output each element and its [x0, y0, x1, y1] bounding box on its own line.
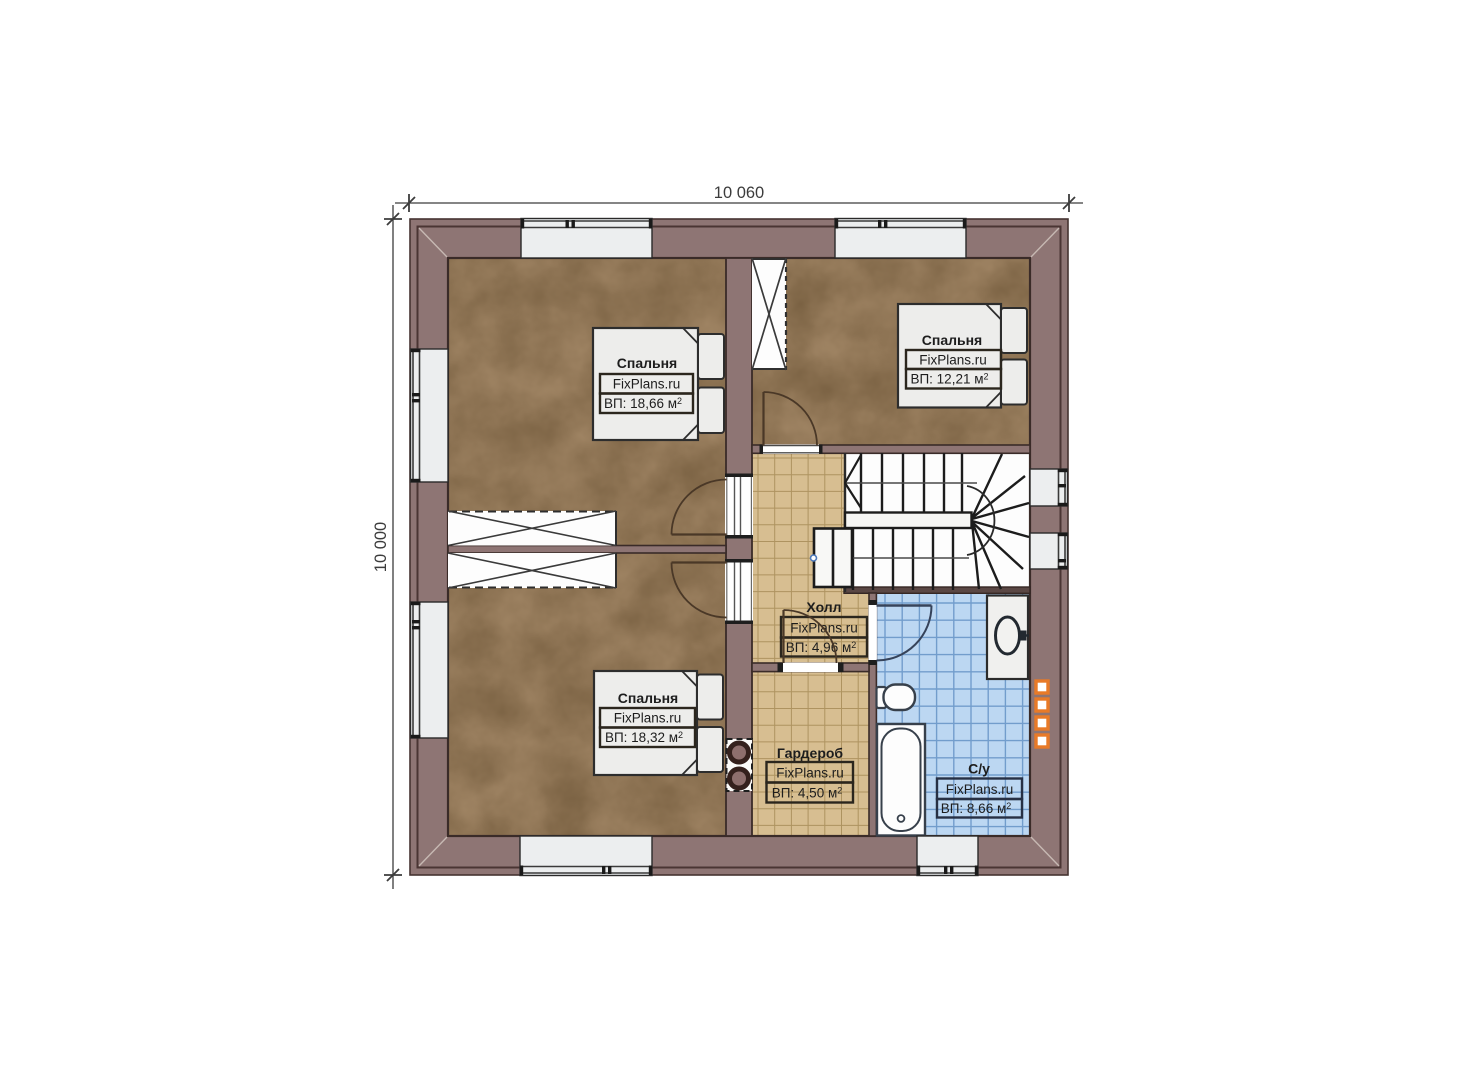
- svg-text:Спальня: Спальня: [922, 332, 982, 348]
- svg-text:ВП: 18,32 м2: ВП: 18,32 м2: [605, 730, 683, 745]
- svg-text:Спальня: Спальня: [617, 355, 677, 371]
- svg-text:ВП: 4,50 м2: ВП: 4,50 м2: [772, 786, 843, 801]
- svg-text:FixPlans.ru: FixPlans.ru: [776, 766, 844, 781]
- svg-text:ВП: 8,66 м2: ВП: 8,66 м2: [941, 801, 1012, 816]
- svg-text:ВП: 12,21 м2: ВП: 12,21 м2: [910, 372, 988, 387]
- svg-text:Гардероб: Гардероб: [777, 745, 844, 761]
- svg-text:FixPlans.ru: FixPlans.ru: [613, 377, 681, 392]
- svg-text:Холл: Холл: [806, 599, 841, 615]
- svg-text:ВП: 18,66 м2: ВП: 18,66 м2: [604, 396, 682, 411]
- svg-text:10 060: 10 060: [714, 184, 764, 202]
- svg-text:С/у: С/у: [968, 761, 990, 777]
- svg-text:Спальня: Спальня: [618, 690, 678, 706]
- svg-text:ВП: 4,96 м2: ВП: 4,96 м2: [786, 640, 857, 655]
- svg-text:10 000: 10 000: [372, 522, 390, 572]
- svg-text:FixPlans.ru: FixPlans.ru: [614, 711, 682, 726]
- svg-text:FixPlans.ru: FixPlans.ru: [919, 353, 987, 368]
- svg-text:FixPlans.ru: FixPlans.ru: [946, 782, 1014, 797]
